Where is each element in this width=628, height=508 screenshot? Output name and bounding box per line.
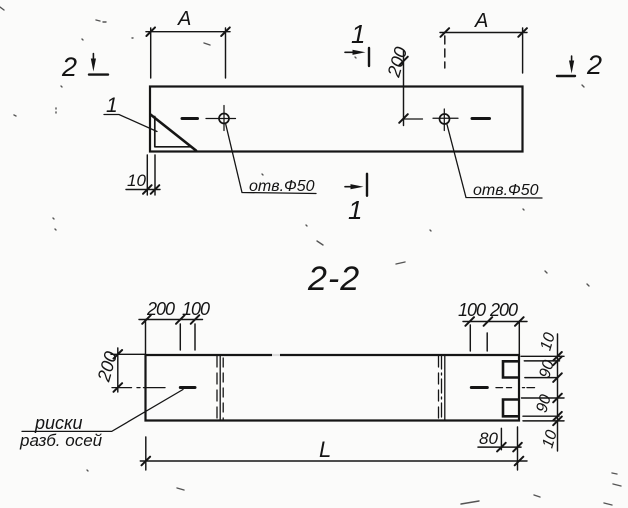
svg-text:отв.Ф50: отв.Ф50 (249, 178, 315, 195)
svg-text:1: 1 (351, 19, 365, 49)
svg-text:риски: риски (34, 413, 83, 433)
svg-text:10: 10 (127, 171, 146, 190)
svg-text:80: 80 (479, 429, 498, 448)
svg-text:200: 200 (93, 349, 121, 384)
svg-text:100: 100 (458, 300, 486, 320)
svg-text:отв.Ф50: отв.Ф50 (473, 182, 539, 199)
svg-text:А: А (177, 8, 191, 30)
svg-text:1: 1 (348, 195, 362, 225)
svg-text:200: 200 (146, 299, 175, 319)
svg-text:200: 200 (383, 45, 411, 80)
svg-text:2: 2 (61, 52, 77, 82)
svg-text:1: 1 (106, 94, 118, 117)
svg-text:10: 10 (538, 331, 559, 353)
svg-text:90: 90 (534, 393, 555, 415)
svg-text:100: 100 (182, 299, 210, 319)
svg-text:разб. осей: разб. осей (19, 431, 103, 450)
svg-text:2-2: 2-2 (307, 260, 360, 298)
svg-text:А: А (474, 10, 488, 32)
svg-text:2: 2 (586, 50, 602, 80)
svg-text:L: L (319, 437, 331, 462)
svg-text:200: 200 (489, 300, 518, 320)
